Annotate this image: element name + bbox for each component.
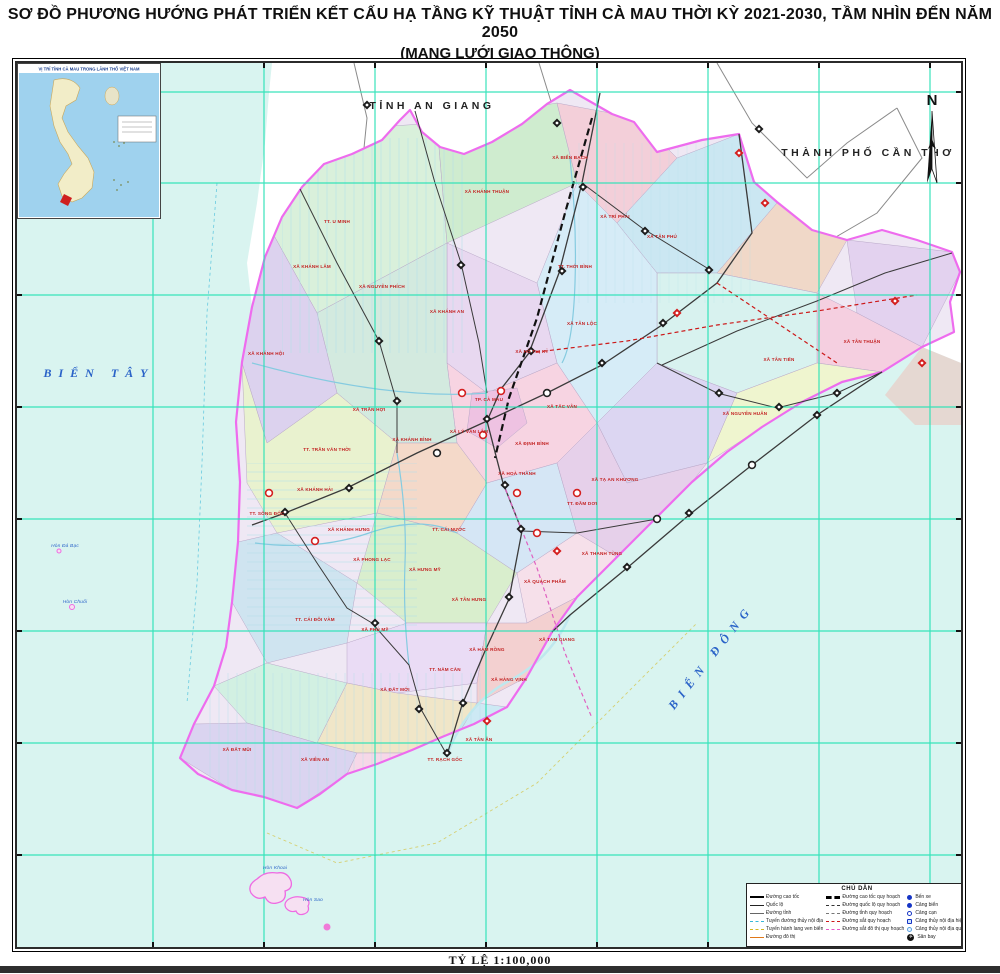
legend-box: CHÚ DẪN Đường cao tốcQuốc lộĐường tỉnhTu… xyxy=(746,883,963,947)
route-badge-icon xyxy=(434,450,441,457)
legend-item-label: Đường tỉnh quy hoạch xyxy=(842,910,892,916)
map-label-commune: XÃ HÀNG VỊNH xyxy=(491,676,527,682)
map-label-sea: BIỂN TÂY xyxy=(42,365,154,380)
legend-swatch-metp-icon xyxy=(826,929,840,930)
map-label-commune: XÃ KHÁNH THUẬN xyxy=(465,188,510,194)
map-label-commune: XÃ ĐẤT MỚI xyxy=(380,685,409,692)
legend-item: Đường tỉnh xyxy=(750,909,823,917)
map-label-commune: XÃ KHÁNH HƯNG xyxy=(328,526,370,532)
legend-item: Cảng cạn xyxy=(907,909,963,917)
legend-item: Đường sắt đô thị quy hoạch xyxy=(826,925,904,933)
legend-title: CHÚ DẪN xyxy=(750,886,963,892)
legend-item-label: Đường sắt quy hoạch xyxy=(842,918,890,924)
legend-swatch-expp-icon xyxy=(826,896,840,899)
map-canvas: TỈNH AN GIANGTHÀNH PHỐ CẦN THƠBIỂN TÂYBI… xyxy=(15,61,963,949)
map-label-commune: XÃ NGUYỄN PHÍCH xyxy=(359,282,405,289)
legend-swatch-prov-icon xyxy=(750,913,764,914)
map-label-commune: TT. CÁI ĐÔI VÀM xyxy=(295,615,335,622)
map-label-commune: TP. CÀ MAU xyxy=(475,396,504,402)
legend-item-label: Cảng thủy nội địa hiện hữu xyxy=(915,918,963,924)
legend-swatch-port2-icon xyxy=(907,903,912,908)
map-label-island: Hòn Chuối xyxy=(63,598,88,605)
legend-swatch-provp-icon xyxy=(826,913,840,914)
compass: N xyxy=(917,91,947,196)
legend-column: Đường cao tốc quy hoạchĐường quốc lộ quy… xyxy=(826,893,904,941)
legend-item-label: Đường tỉnh xyxy=(766,910,791,916)
map-label-commune: TT. RẠCH GỐC xyxy=(427,756,463,762)
legend-item-label: Cảng thủy nội địa quy hoạch xyxy=(915,926,963,932)
route-badge-icon xyxy=(312,538,319,545)
legend-item: Đường cao tốc quy hoạch xyxy=(826,893,904,901)
legend-item: ✈Sân bay xyxy=(907,933,963,941)
map-label-commune: XÃ TAM GIANG xyxy=(539,636,575,642)
map-label-commune: TT. TRẦN VĂN THỜI xyxy=(303,445,350,452)
legend-item: Đường quốc lộ quy hoạch xyxy=(826,901,904,909)
map-label-commune: XÃ KHÁNH BÌNH xyxy=(392,435,432,442)
map-label-island: Hòn Đá Bạc xyxy=(51,543,79,549)
map-label-commune: XÃ TRẦN HỢI xyxy=(353,406,385,412)
legend-swatch-port-icon xyxy=(907,895,912,900)
map-label-commune: XÃ HÀM RỒNG xyxy=(469,646,505,652)
map-label-commune: XÃ TÂN ÂN xyxy=(466,736,493,742)
legend-swatch-wat-icon xyxy=(750,921,764,922)
route-badge-icon xyxy=(544,390,551,397)
legend-item: Cảng thủy nội địa hiện hữu xyxy=(907,917,963,925)
bottom-bar xyxy=(0,966,1000,973)
legend-item-label: Tuyến hành lang ven biển xyxy=(766,926,823,932)
map-label-commune: XÃ ĐỊNH BÌNH xyxy=(515,439,549,446)
north-arrow-icon xyxy=(927,111,937,183)
legend-item-label: Đường cao tốc quy hoạch xyxy=(842,894,900,900)
legend-item: Tuyến đường thủy nội địa xyxy=(750,917,823,925)
inset-mini-legend xyxy=(118,116,156,142)
legend-item: Bến xe xyxy=(907,893,963,901)
map-label-region: TỈNH AN GIANG xyxy=(369,99,494,112)
legend-item-label: Quốc lộ xyxy=(766,902,783,908)
legend-item-label: Đường sắt đô thị quy hoạch xyxy=(842,926,904,932)
route-badge-icon xyxy=(514,490,521,497)
page-title: SƠ ĐỒ PHƯƠNG HƯỚNG PHÁT TRIỂN KẾT CẤU HẠ… xyxy=(0,6,1000,42)
legend-item: Quốc lộ xyxy=(750,901,823,909)
map-label-commune: XÃ THANH TÙNG xyxy=(582,550,623,556)
legend-item-label: Đường đô thị xyxy=(766,934,795,940)
map-label-commune: XÃ BIỂN BẠCH xyxy=(552,154,588,160)
map-label-commune: XÃ PHÚ MỸ xyxy=(361,626,388,632)
map-label-commune: XÃ VIÊN AN xyxy=(301,755,330,762)
legend-item: Cảng thủy nội địa quy hoạch xyxy=(907,925,963,933)
legend-swatch-open-icon xyxy=(907,911,912,916)
map-label-commune: TT. NĂM CĂN xyxy=(429,666,461,672)
legend-swatch-inl-icon xyxy=(907,919,912,924)
legend-item: Đường đô thị xyxy=(750,933,823,941)
map-label-island: Hòn Sao xyxy=(303,897,323,903)
legend-column: Đường cao tốcQuốc lộĐường tỉnhTuyến đườn… xyxy=(750,893,823,941)
route-badge-icon xyxy=(266,490,273,497)
map-label-commune: XÃ TẠ AN KHƯƠNG xyxy=(591,476,638,482)
map-label-commune: TT. ĐẦM DƠI xyxy=(567,500,597,506)
inset-title: VỊ TRÍ TỈNH CÀ MAU TRONG LÃNH THỔ VIỆT N… xyxy=(39,67,140,72)
map-label-commune: XÃ LÝ VĂN LÂM xyxy=(450,428,488,434)
legend-item-label: Cảng biển xyxy=(915,902,938,908)
legend-item-label: Cảng cạn xyxy=(915,910,936,916)
map-label-commune: XÃ KHÁNH HỘI xyxy=(248,349,284,356)
route-badge-icon xyxy=(654,516,661,523)
map-label-commune: XÃ KHÁNH AN xyxy=(430,308,465,314)
legend-item-label: Tuyến đường thủy nội địa xyxy=(766,918,823,924)
legend-swatch-inlp-icon xyxy=(907,927,912,932)
legend-item-label: Đường quốc lộ quy hoạch xyxy=(842,902,900,908)
map-label-commune: XÃ TRÍ PHẢI xyxy=(600,212,630,219)
map-label-commune: XÃ QUÁCH PHẨM xyxy=(524,578,566,584)
inset-sea xyxy=(19,73,159,217)
legend-swatch-air-icon: ✈ xyxy=(907,934,914,941)
map-label-commune: TT. CÁI NƯỚC xyxy=(432,525,466,532)
legend-item: Đường tỉnh quy hoạch xyxy=(826,909,904,917)
map-label-commune: XÃ TÂN THUẬN xyxy=(844,338,881,344)
map-label-commune: TT. U MINH xyxy=(324,219,350,224)
map-label-commune: XÃ HOÀ THÀNH xyxy=(498,470,536,476)
map-label-commune: XÃ TÂN TIẾN xyxy=(763,356,795,362)
north-label: N xyxy=(927,92,938,109)
route-badge-icon xyxy=(534,530,541,537)
map-label-commune: XÃ PHONG LẠC xyxy=(353,556,391,562)
legend-swatch-rail-icon xyxy=(826,921,840,922)
legend-item-label: Sân bay xyxy=(917,934,935,940)
map-label-commune: XÃ NGUYỄN HUÂN xyxy=(723,410,768,416)
map-label-commune: XÃ ĐẤT MŨI xyxy=(223,746,252,752)
route-badge-icon xyxy=(459,390,466,397)
legend-item-label: Bến xe xyxy=(915,894,931,900)
map-label-commune: XÃ HỒ THỊ KỶ xyxy=(515,348,548,354)
inset-island xyxy=(105,87,119,105)
map-label-commune: XÃ KHÁNH LÂM xyxy=(293,263,331,269)
legend-columns: Đường cao tốcQuốc lộĐường tỉnhTuyến đườn… xyxy=(750,893,963,941)
legend-item: Tuyến hành lang ven biển xyxy=(750,925,823,933)
map-frame: TỈNH AN GIANGTHÀNH PHỐ CẦN THƠBIỂN TÂYBI… xyxy=(12,58,966,952)
map-label-commune: XÃ KHÁNH HẢI xyxy=(297,486,333,492)
map-label-commune: TT. SÔNG ĐỐC xyxy=(249,509,285,516)
legend-swatch-coast-icon xyxy=(750,929,764,930)
legend-item: Đường cao tốc xyxy=(750,893,823,901)
legend-swatch-natp-icon xyxy=(826,905,840,906)
legend-swatch-exp-icon xyxy=(750,896,764,898)
map-label-island: Hòn Khoai xyxy=(263,865,288,871)
route-badge-icon xyxy=(498,388,505,395)
legend-swatch-nat-icon xyxy=(750,905,764,906)
map-label-commune: XÃ TÂN LỘC xyxy=(567,319,598,326)
map-label-commune: TT. THỚI BÌNH xyxy=(558,262,593,269)
map-label-commune: XÃ TẮC VÂN xyxy=(547,402,578,409)
legend-item: Cảng biển xyxy=(907,901,963,909)
legend-column: Bến xeCảng biểnCảng cạnCảng thủy nội địa… xyxy=(907,893,963,941)
legend-item: Đường sắt quy hoạch xyxy=(826,917,904,925)
inset-map: VỊ TRÍ TỈNH CÀ MAU TRONG LÃNH THỔ VIỆT N… xyxy=(17,63,161,219)
legend-item-label: Đường cao tốc xyxy=(766,894,799,900)
map-label-commune: XÃ HƯNG MỸ xyxy=(409,566,441,572)
route-badge-icon xyxy=(574,490,581,497)
page-title-block: SƠ ĐỒ PHƯƠNG HƯỚNG PHÁT TRIỂN KẾT CẤU HẠ… xyxy=(0,6,1000,62)
map-label-commune: XÃ TÂN PHÚ xyxy=(647,233,678,239)
map-label-commune: XÃ TÂN HƯNG xyxy=(452,596,487,602)
route-badge-icon xyxy=(749,462,756,469)
legend-swatch-urb-icon xyxy=(750,937,764,938)
